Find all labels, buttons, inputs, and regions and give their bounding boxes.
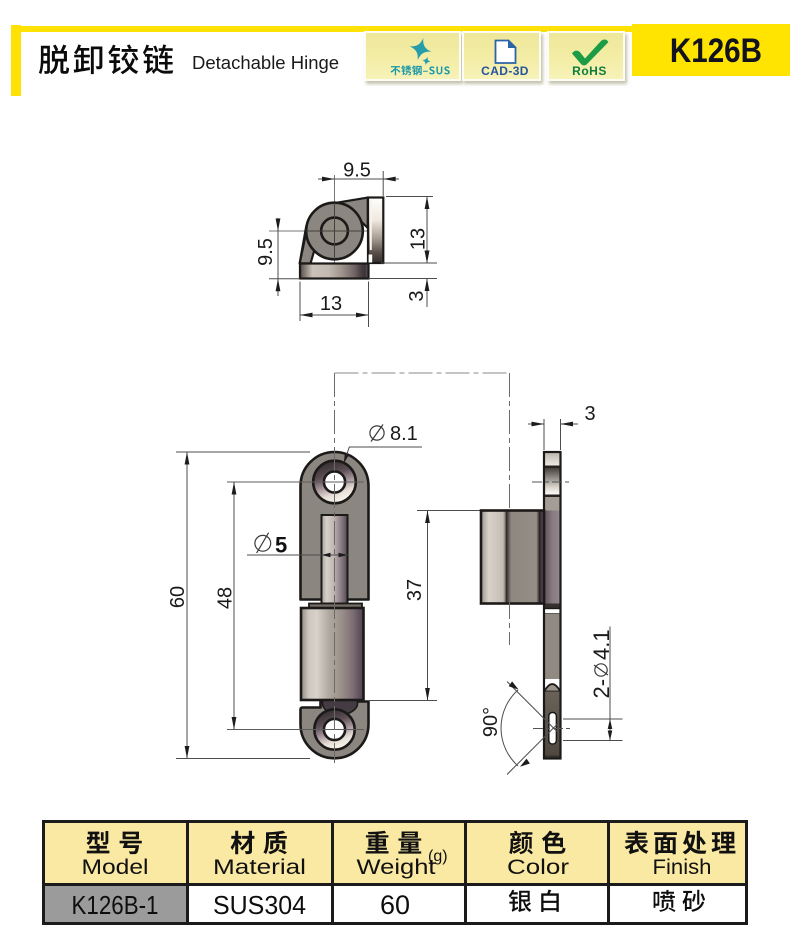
svg-text:90°: 90°: [480, 707, 502, 737]
svg-text:(g): (g): [428, 848, 448, 865]
svg-text:K126B-1: K126B-1: [72, 890, 159, 920]
svg-text:4.1: 4.1: [589, 629, 614, 660]
svg-text:60: 60: [167, 586, 189, 608]
svg-text:Model: Model: [82, 856, 149, 879]
svg-text:13: 13: [408, 228, 430, 250]
svg-text:13: 13: [320, 293, 342, 315]
svg-text:SUS304: SUS304: [213, 890, 306, 920]
svg-text:3: 3: [584, 403, 595, 425]
svg-text:Color: Color: [507, 856, 569, 879]
svg-text:5: 5: [275, 533, 287, 558]
svg-text:8.1: 8.1: [390, 423, 418, 445]
svg-text:Finish: Finish: [653, 856, 712, 879]
svg-text:37: 37: [404, 579, 426, 601]
svg-text:48: 48: [215, 587, 237, 609]
svg-text:9.5: 9.5: [343, 160, 371, 182]
svg-text:Weight: Weight: [357, 856, 436, 879]
svg-text:60: 60: [380, 890, 410, 920]
svg-text:3: 3: [406, 290, 428, 301]
svg-text:2-: 2-: [589, 679, 614, 699]
svg-text:9.5: 9.5: [255, 238, 277, 266]
svg-text:Material: Material: [213, 856, 306, 879]
